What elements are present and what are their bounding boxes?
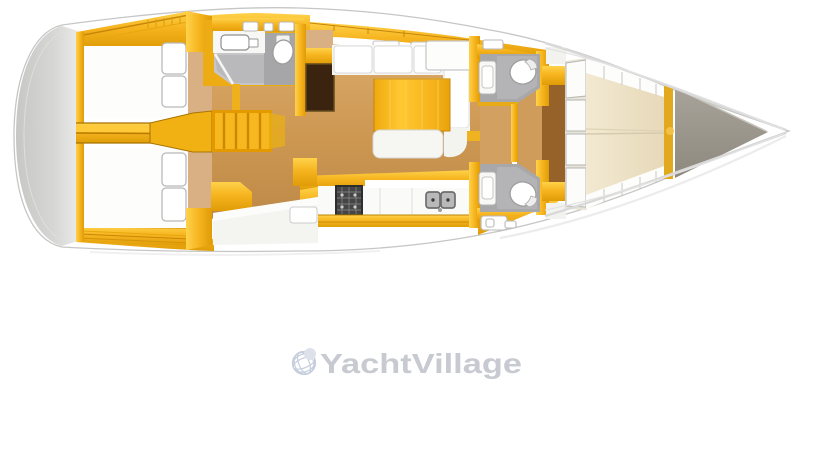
svg-text:YachtVillage: YachtVillage [320, 348, 522, 379]
